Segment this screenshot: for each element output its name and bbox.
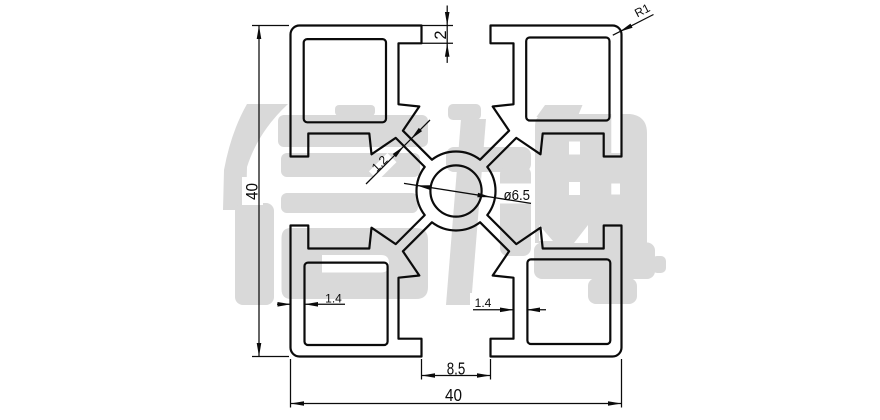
- svg-text:ø6.5: ø6.5: [504, 188, 531, 204]
- svg-text:R1: R1: [632, 1, 652, 21]
- svg-text:40: 40: [243, 183, 261, 200]
- svg-text:1.4: 1.4: [475, 296, 492, 310]
- svg-text:2: 2: [432, 30, 450, 39]
- svg-text:1.4: 1.4: [325, 291, 342, 305]
- svg-text:8.5: 8.5: [447, 358, 466, 378]
- svg-text:40: 40: [445, 385, 462, 405]
